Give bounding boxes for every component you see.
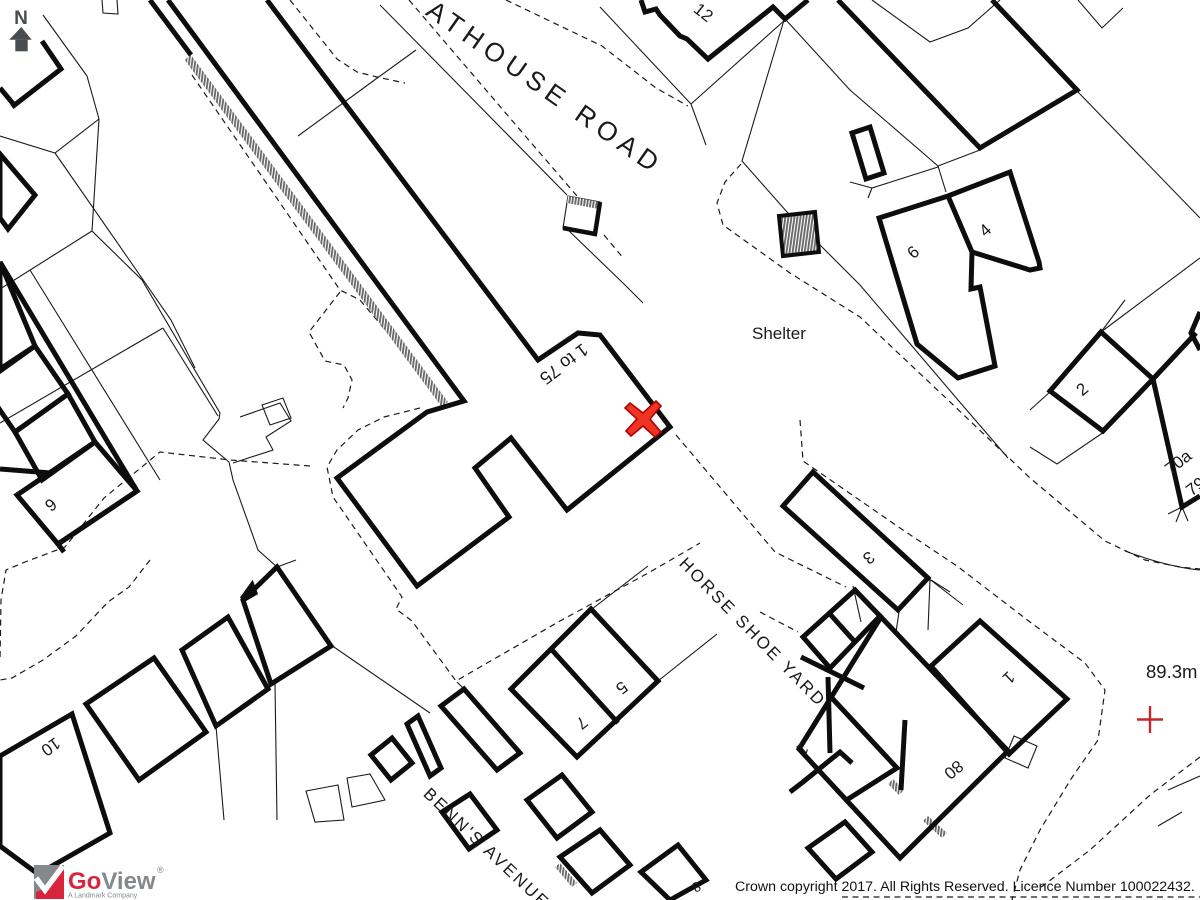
svg-text:Shelter: Shelter bbox=[752, 324, 806, 343]
svg-text:Crown copyright 2017. All Righ: Crown copyright 2017. All Rights Reserve… bbox=[735, 879, 1195, 895]
svg-text:GoView: GoView bbox=[68, 868, 156, 895]
svg-text:N: N bbox=[14, 8, 28, 29]
svg-text:89.3m: 89.3m bbox=[1146, 661, 1197, 682]
svg-text:®: ® bbox=[157, 865, 164, 875]
svg-text:A Landmark Company: A Landmark Company bbox=[68, 893, 138, 900]
